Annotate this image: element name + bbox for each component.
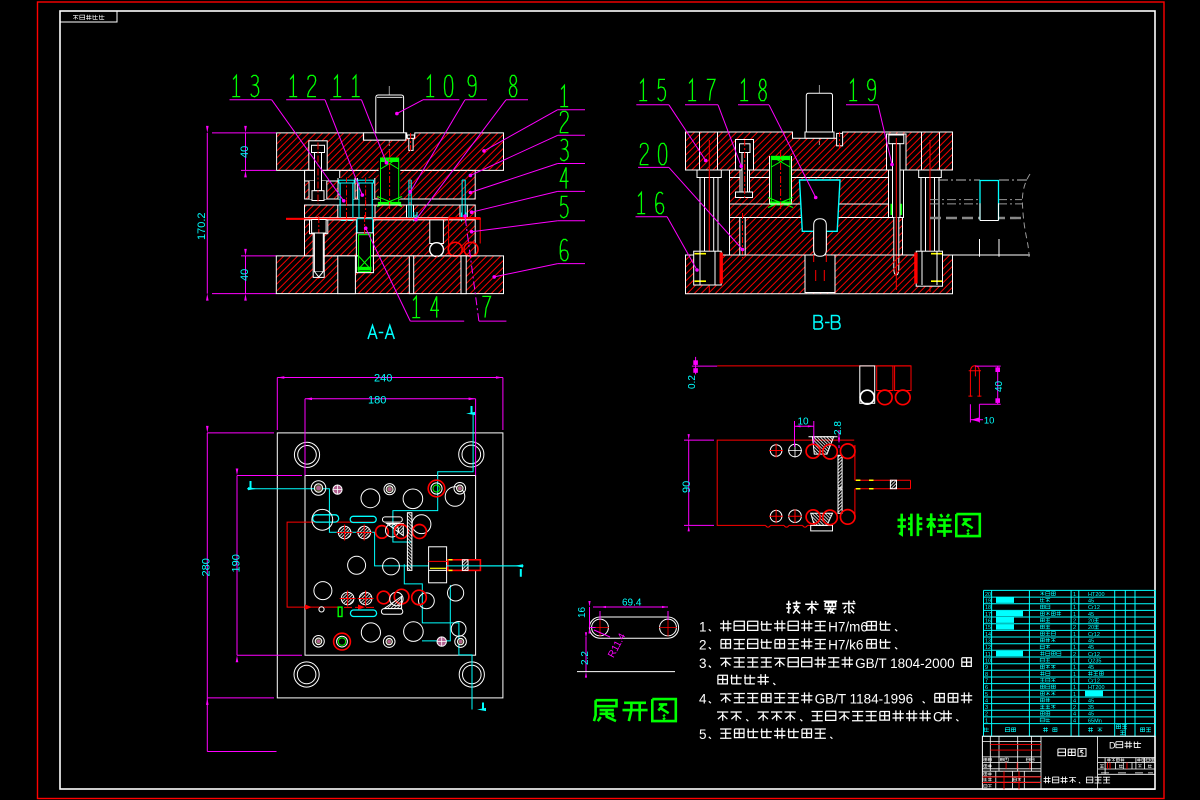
svg-text:1: 1 [699,620,707,635]
svg-text:16: 16 [577,606,588,618]
svg-text:4: 4 [985,698,988,704]
svg-text:65Mn: 65Mn [1088,718,1102,724]
svg-text:2.2: 2.2 [580,651,591,665]
svg-text:1: 1 [1073,592,1076,598]
svg-text:1: 1 [1073,665,1076,671]
svg-text:19: 19 [985,599,991,605]
svg-text:8: 8 [985,672,988,678]
svg-text:D: D [1109,741,1116,751]
svg-text:45: 45 [1088,698,1094,704]
svg-text:280: 280 [201,558,213,576]
svg-text:9: 9 [985,665,988,671]
svg-text:45: 45 [1088,599,1094,605]
svg-text:170.2: 170.2 [196,212,208,240]
svg-text:45: 45 [1088,645,1094,651]
svg-text:180: 180 [368,394,386,406]
svg-text:Cr12: Cr12 [1088,652,1100,658]
svg-text:15: 15 [985,625,991,631]
svg-text:90: 90 [681,481,693,493]
svg-text:4: 4 [699,692,707,707]
svg-text:45: 45 [1088,665,1094,671]
svg-text:2: 2 [699,638,707,653]
svg-text:4: 4 [1073,718,1076,724]
svg-text:1: 1 [985,718,988,724]
svg-text:13: 13 [985,639,991,645]
svg-text:GB/T 1184-1996: GB/T 1184-1996 [815,692,914,707]
svg-text:16: 16 [985,619,991,625]
svg-text:GB/T 1804-2000: GB/T 1804-2000 [855,656,955,671]
svg-text:Cr12: Cr12 [1088,632,1100,638]
svg-text:7: 7 [985,678,988,684]
svg-text:1: 1 [1073,639,1076,645]
svg-text:1: 1 [1073,645,1076,651]
svg-text:2: 2 [1073,705,1076,711]
svg-text:5: 5 [699,727,707,742]
svg-text:HT200: HT200 [1088,685,1105,691]
svg-text:10: 10 [984,416,995,427]
svg-text:20: 20 [1088,619,1094,625]
svg-text:1: 1 [1073,685,1076,691]
svg-text:Cr12: Cr12 [1088,678,1100,684]
svg-text:5: 5 [985,692,988,698]
svg-text:1: 1 [1073,612,1076,618]
svg-text:45: 45 [1088,612,1094,618]
svg-text:1: 1 [1073,599,1076,605]
svg-text:2: 2 [1073,625,1076,631]
svg-text:20: 20 [985,592,991,598]
svg-text:3: 3 [699,656,707,671]
svg-text:10: 10 [798,417,810,428]
svg-text:17: 17 [985,612,991,618]
svg-text:1: 1 [1073,659,1076,665]
svg-text:12: 12 [985,645,991,651]
svg-text:H7/m6: H7/m6 [828,620,868,635]
svg-text:1: 1 [1073,672,1076,678]
svg-text:20: 20 [1088,625,1094,631]
svg-text:1: 1 [1073,605,1076,611]
svg-text:1: 1 [1073,678,1076,684]
svg-text:40: 40 [239,269,251,281]
svg-text:18: 18 [985,605,991,611]
svg-text:190: 190 [231,554,243,572]
svg-text:2: 2 [1073,652,1076,658]
svg-text:0.2: 0.2 [687,375,698,389]
svg-text:1: 1 [1073,692,1076,698]
svg-text:2: 2 [985,712,988,718]
svg-text:C: C [933,710,943,725]
svg-text:45: 45 [1088,712,1094,718]
svg-text:40: 40 [994,380,1005,392]
svg-text:35: 35 [1088,705,1094,711]
svg-text:45: 45 [1088,639,1094,645]
svg-text:11: 11 [985,652,991,658]
svg-text:240: 240 [374,373,392,385]
svg-text:69.4: 69.4 [622,598,642,609]
svg-text:Cr12: Cr12 [1088,605,1100,611]
svg-text:14: 14 [985,632,991,638]
svg-text:6: 6 [985,685,988,691]
svg-text:10: 10 [985,659,991,665]
svg-text:40: 40 [239,146,251,158]
svg-text:4: 4 [1073,712,1076,718]
svg-text:1: 1 [1073,632,1076,638]
svg-text:2: 2 [1073,619,1076,625]
svg-text:Q235: Q235 [1088,659,1101,665]
svg-text:45: 45 [1088,692,1094,698]
svg-text:3: 3 [985,705,988,711]
svg-text:2.8: 2.8 [833,421,844,435]
svg-text:H7/k6: H7/k6 [828,638,863,653]
svg-text:HT200: HT200 [1088,592,1105,598]
svg-text:4: 4 [1073,698,1076,704]
